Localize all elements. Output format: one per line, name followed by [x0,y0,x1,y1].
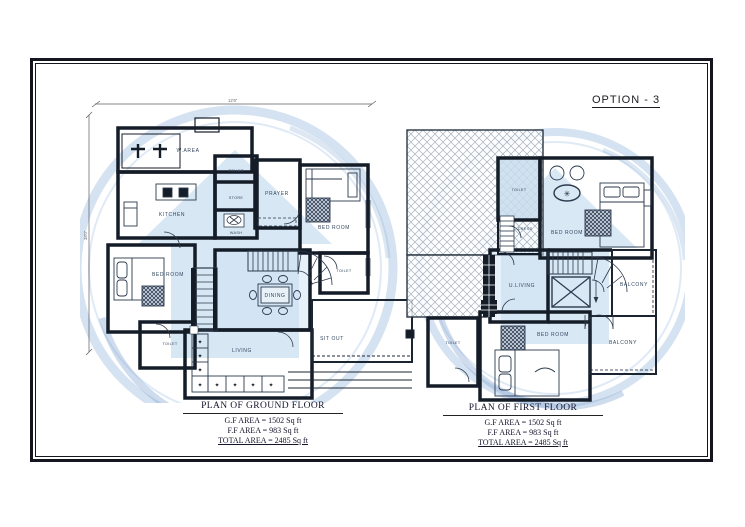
svg-text:✦: ✦ [268,382,273,389]
bed-left [114,258,164,306]
first-floor-plan: ✳ TOILET DRESS BED ROO [395,110,685,410]
gf-area-total: TOTAL AREA = 2485 Sq ft [183,436,343,446]
wash-basin [224,214,244,227]
option-label: OPTION - 3 [592,94,660,108]
ground-floor-plan: 12'6" 38'0" [80,88,420,403]
svg-text:✦: ✦ [214,382,219,389]
svg-text:✦: ✦ [197,367,202,374]
room-label-store: STORE [229,196,244,200]
svg-text:✦: ✦ [232,382,237,389]
ff-area-total: TOTAL AREA = 2485 Sq ft [443,438,603,448]
room-label-u-living: U.LIVING [509,283,535,289]
room-label-toilet-btm: TOILET [445,341,460,345]
room-label-living: LIVING [232,348,252,354]
room-label-bed-top: BED ROOM [318,225,350,231]
room-label-dress: DRESS [518,227,533,231]
bed-top-right [306,169,360,222]
svg-text:✦: ✦ [197,382,202,389]
room-label-toilet-left: TOILET [162,342,177,346]
room-label-kitchen: KITCHEN [159,212,185,218]
dress-ladder [500,216,514,252]
ff-area-line-2: F.F AREA = 983 Sq ft [443,428,603,438]
room-label-balcony-btm: BALCONY [609,340,637,346]
room-label-prayer: PRAYER [265,191,289,197]
room-label-bed-left: BED ROOM [152,272,184,278]
svg-text:✦: ✦ [250,382,255,389]
drawing-sheet: OPTION - 3 12'6" 38'0" [0,0,745,527]
room-label-balcony-mid: BALCONY [620,282,648,288]
ground-floor-title: PLAN OF GROUND FLOOR [183,401,343,414]
gf-area-line-2: F.F AREA = 983 Sq ft [183,426,343,436]
room-label-bed-top: BED ROOM [551,230,583,236]
room-label-wash: WASH [230,231,242,235]
ground-floor-title-block: PLAN OF GROUND FLOOR G.F AREA = 1502 Sq … [183,401,343,446]
ff-area-line-1: G.F AREA = 1502 Sq ft [443,418,603,428]
room-label-w-area: W.AREA [176,148,199,154]
dim-height-label: 38'0" [83,230,88,240]
gf-area-line-1: G.F AREA = 1502 Sq ft [183,416,343,426]
svg-text:✦: ✦ [197,353,202,360]
svg-text:✦: ✦ [197,339,202,346]
room-label-sit-out: SIT OUT [320,336,344,342]
room-label-bed-btm: BED ROOM [537,332,569,338]
room-label-toilet-right: TOILET [336,269,351,273]
first-floor-title: PLAN OF FIRST FLOOR [443,403,603,416]
first-floor-title-block: PLAN OF FIRST FLOOR G.F AREA = 1502 Sq f… [443,403,603,448]
wardrobes [481,255,497,317]
room-label-dining: DINING [264,293,285,299]
dim-width-label: 12'6" [228,98,238,103]
svg-text:✳: ✳ [564,190,571,199]
room-label-toilet-mid: TOILET [228,169,243,173]
room-label-toilet-top: TOILET [511,188,526,192]
